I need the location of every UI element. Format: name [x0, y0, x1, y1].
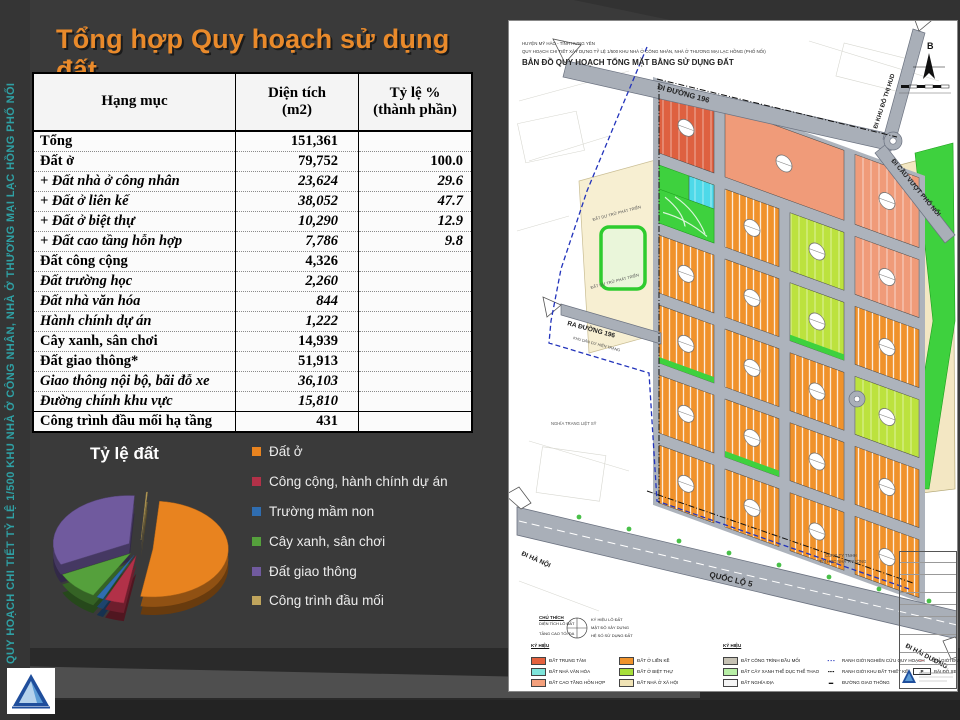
map-legend-swatch-icon: [619, 668, 634, 676]
map-title-3: BẢN ĐỒ QUY HOẠCH TỔNG MẶT BẰNG SỬ DỤNG Đ…: [522, 57, 734, 67]
svg-text:KÝ HIỆU LÔ ĐẤT: KÝ HIỆU LÔ ĐẤT: [591, 617, 623, 622]
area-label-company1: CÔNG TY TNHH: [825, 553, 857, 558]
table-row: Đất giao thông*51,913: [33, 352, 472, 372]
sidebar-vertical-title: QUY HOẠCH CHI TIẾT TỶ LỆ 1/500 KHU NHÀ Ở…: [5, 52, 25, 664]
map-legend-item: ĐẤT CÂY XANH THỂ DỤC THỂ THAO: [723, 666, 819, 677]
map-note-block: CHÚ THÍCH DIỆN TÍCH LÔ ĐẤT TẦNG CAO TỐI …: [539, 615, 669, 622]
col-header-area: Diện tích(m2): [236, 73, 359, 131]
masterplan-map: B HUYỆN MỸ HÀO - TỈNH HƯNG YÊN QUY HOẠCH…: [508, 20, 958, 692]
map-legend-swatch-icon: [619, 679, 634, 687]
table-row: Cây xanh, sân chơi14,939: [33, 332, 472, 352]
map-legend-swatch-icon: [531, 668, 546, 676]
legend-swatch-icon: [252, 567, 261, 576]
col-header-percent: Tỷ lệ %(thành phần): [359, 73, 473, 131]
pie-chart-block: Tỷ lệ đất: [28, 438, 260, 653]
table-row: Tổng151,361: [33, 131, 472, 152]
map-legend-swatch-icon: [619, 657, 634, 665]
table-row: + Đất nhà ở công nhân23,62429.6: [33, 172, 472, 192]
map-legend-swatch-icon: [531, 657, 546, 665]
map-legend-item: ĐẤT NGHĨA ĐỊA: [723, 677, 774, 688]
map-legend-symbol-icon: ▪ ▪ ▪: [823, 658, 839, 663]
area-label-cemetery: NGHĨA TRANG LIỆT SỸ: [551, 421, 597, 426]
pie-legend-item: Đất giao thông: [252, 564, 480, 581]
pie-chart-legend: Đất ởCông cộng, hành chính dự ánTrường m…: [252, 444, 480, 623]
table-row: Giao thông nội bộ, bãi đỗ xe36,103: [33, 372, 472, 392]
pie-legend-item: Công trình đầu mối: [252, 593, 480, 610]
titleblock-logo-icon: [901, 666, 955, 686]
map-legend-symbol-icon: ▬: [823, 680, 839, 685]
triangle-logo-icon: [11, 672, 51, 710]
svg-text:TẦNG CAO TỐI ĐA: TẦNG CAO TỐI ĐA: [539, 631, 575, 636]
legend-swatch-icon: [252, 447, 261, 456]
pie-chart: [28, 464, 260, 649]
map-legend-item: ĐẤT NHÀ Ở XÃ HỘI: [619, 677, 678, 688]
col-header-category: Hạng mục: [33, 73, 236, 131]
map-legend-swatch-icon: [723, 657, 738, 665]
road-label-hanoi: ĐI HÀ NỘI: [520, 549, 552, 570]
table-row: Đất trường học2,260: [33, 272, 472, 292]
table-row: Công trình đầu mối hạ tầng431: [33, 412, 472, 433]
table-row: Đất công cộng4,326: [33, 252, 472, 272]
pie-legend-item: Trường mầm non: [252, 504, 480, 521]
map-title-2: QUY HOẠCH CHI TIẾT XÂY DỰNG TỶ LỆ 1/500 …: [522, 49, 766, 54]
pie-legend-item: Cây xanh, sân chơi: [252, 534, 480, 551]
background-footer-band: [0, 700, 960, 720]
map-legend-item: ĐẤT TRUNG TÂM: [531, 655, 586, 666]
map-legend-item: ĐẤT CAO TẦNG HỖN HỢP: [531, 677, 605, 688]
table-row: Đất nhà văn hóa844: [33, 292, 472, 312]
svg-text:MẬT ĐỘ XÂY DỰNG: MẬT ĐỘ XÂY DỰNG: [591, 625, 629, 630]
map-legend-item: ĐẤT Ở LIỀN KỀ: [619, 655, 670, 666]
table-row: + Đất ở biệt thự10,29012.9: [33, 212, 472, 232]
table-row: + Đất cao tầng hỗn hợp7,7869.8: [33, 232, 472, 252]
map-legend-header-2: KÝ HIỆU: [723, 643, 741, 648]
pie-legend-item: Công cộng, hành chính dự án: [252, 474, 480, 491]
masterplan-drawing: B HUYỆN MỸ HÀO - TỈNH HƯNG YÊN QUY HOẠCH…: [509, 21, 957, 691]
map-title-block: [899, 551, 957, 689]
map-legend-swatch-icon: [723, 679, 738, 687]
legend-swatch-icon: [252, 477, 261, 486]
svg-text:HỆ SỐ SỬ DỤNG ĐẤT: HỆ SỐ SỬ DỤNG ĐẤT: [591, 633, 633, 638]
map-legend-item: ĐẤT NHÀ VĂN HÓA: [531, 666, 590, 677]
map-legend-item: ĐẤT CÔNG TRÌNH ĐẦU MỐI: [723, 655, 800, 666]
company-logo: [7, 668, 55, 714]
map-legend-symbol-item: ▬ĐƯỜNG GIAO THÔNG: [823, 677, 890, 688]
svg-text:B: B: [927, 41, 934, 51]
map-legend-symbol-icon: ▪▪▪▪: [823, 669, 839, 674]
legend-swatch-icon: [252, 537, 261, 546]
map-legend-swatch-icon: [723, 668, 738, 676]
map-legend-swatch-icon: [531, 679, 546, 687]
area-label-company2: TIN HỌC NHÀ TRƯỜNG: [819, 559, 866, 564]
pie-chart-title: Tỷ lệ đất: [90, 444, 159, 464]
pie-legend-item: Đất ở: [252, 444, 480, 461]
legend-swatch-icon: [252, 596, 261, 605]
map-title-1: HUYỆN MỸ HÀO - TỈNH HƯNG YÊN: [522, 41, 595, 46]
landuse-table: Hạng mục Diện tích(m2) Tỷ lệ %(thành phầ…: [32, 72, 473, 433]
svg-text:DIỆN TÍCH LÔ ĐẤT: DIỆN TÍCH LÔ ĐẤT: [539, 621, 575, 626]
plot-symbol-diagram: DIỆN TÍCH LÔ ĐẤT TẦNG CAO TỐI ĐA KÝ HIỆU…: [539, 615, 659, 641]
map-legend-item: ĐẤT Ở BIỆT THỰ: [619, 666, 673, 677]
table-row: Hành chính dự án1,222: [33, 312, 472, 332]
table-row: Đường chính khu vực15,810: [33, 392, 472, 412]
legend-swatch-icon: [252, 507, 261, 516]
map-legend-header-1: KÝ HIỆU: [531, 643, 549, 648]
map-legend-symbol-item: ▪▪▪▪RANH GIỚI KHU ĐẤT THIẾT KẾ: [823, 666, 908, 677]
table-row: + Đất ở liên kế38,05247.7: [33, 192, 472, 212]
table-row: Đất ở79,752100.0: [33, 152, 472, 172]
